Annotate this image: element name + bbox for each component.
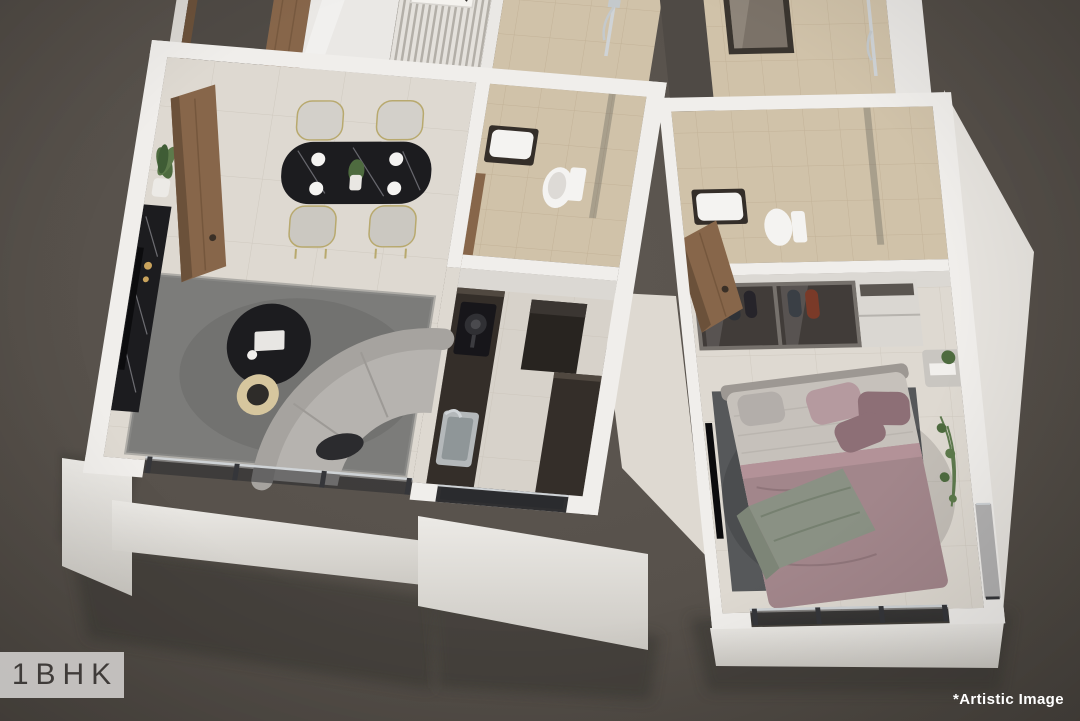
washbasin-2 <box>696 193 744 221</box>
main-wing <box>83 0 694 515</box>
coffee-table-books <box>254 330 284 351</box>
vanity-mirror <box>720 0 795 54</box>
plan-type-badge: 1BHK <box>0 652 124 698</box>
floorplan-render-stage: 1BHK *Artistic Image <box>0 0 1080 721</box>
plinth-bedroom-band <box>710 622 1004 668</box>
back-pillow <box>736 390 787 427</box>
artistic-image-disclaimer: *Artistic Image <box>953 691 1064 708</box>
south-wall-band-2-right <box>948 608 1005 625</box>
washbasin <box>489 129 535 160</box>
plant-pot <box>151 178 171 198</box>
bedside-books <box>929 363 956 375</box>
plan-type-label: 1BHK <box>12 658 118 692</box>
south-wall-band-2-left <box>711 613 752 629</box>
apartment-3d-render <box>0 0 1080 721</box>
